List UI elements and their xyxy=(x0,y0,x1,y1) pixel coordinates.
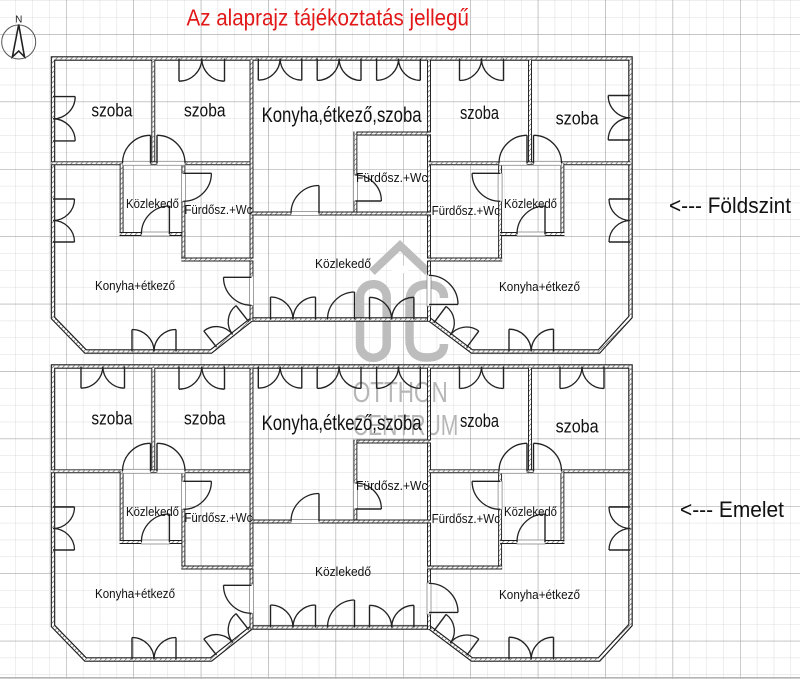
svg-text:Fürdősz.+Wc: Fürdősz.+Wc xyxy=(432,203,501,218)
svg-text:OTTHON: OTTHON xyxy=(353,377,448,409)
svg-text:Fürdősz.+Wc: Fürdősz.+Wc xyxy=(356,170,428,185)
svg-text:Közlekedő: Közlekedő xyxy=(315,256,371,271)
svg-text:Konyha,étkező,szoba: Konyha,étkező,szoba xyxy=(262,104,422,127)
svg-text:Fürdősz.+Wc: Fürdősz.+Wc xyxy=(356,478,428,493)
svg-text:szoba: szoba xyxy=(184,100,226,120)
svg-text:Konyha+étkező: Konyha+étkező xyxy=(499,587,580,602)
svg-text:Fürdősz.+Wc: Fürdősz.+Wc xyxy=(184,202,252,217)
svg-text:szoba: szoba xyxy=(556,417,600,437)
svg-text:<--- Földszint: <--- Földszint xyxy=(669,193,792,218)
svg-text:Fürdősz.+Wc: Fürdősz.+Wc xyxy=(184,510,252,525)
svg-text:szoba: szoba xyxy=(460,411,500,431)
svg-text:Az alaprajz tájékoztatás jelle: Az alaprajz tájékoztatás jellegű xyxy=(187,5,470,31)
svg-text:szoba: szoba xyxy=(460,103,500,123)
svg-text:szoba: szoba xyxy=(556,109,600,129)
svg-text:szoba: szoba xyxy=(91,408,133,428)
svg-text:Fürdősz.+Wc: Fürdősz.+Wc xyxy=(432,511,501,526)
svg-text:Konyha+étkező: Konyha+étkező xyxy=(499,279,580,294)
svg-text:N: N xyxy=(15,15,22,26)
svg-text:Konyha+étkező: Konyha+étkező xyxy=(95,586,175,601)
svg-text:Konyha+étkező: Konyha+étkező xyxy=(95,278,175,293)
svg-text:szoba: szoba xyxy=(184,408,226,428)
svg-text:Közlekedő: Közlekedő xyxy=(504,197,557,211)
svg-text:Közlekedő: Közlekedő xyxy=(504,505,557,519)
svg-text:szoba: szoba xyxy=(91,100,133,120)
svg-text:Közlekedő: Közlekedő xyxy=(126,505,179,519)
svg-text:<--- Emelet: <--- Emelet xyxy=(680,497,785,522)
svg-text:Közlekedő: Közlekedő xyxy=(126,197,179,211)
svg-text:Közlekedő: Közlekedő xyxy=(315,564,371,579)
svg-text:Konyha,étkező,szoba: Konyha,étkező,szoba xyxy=(262,412,422,435)
